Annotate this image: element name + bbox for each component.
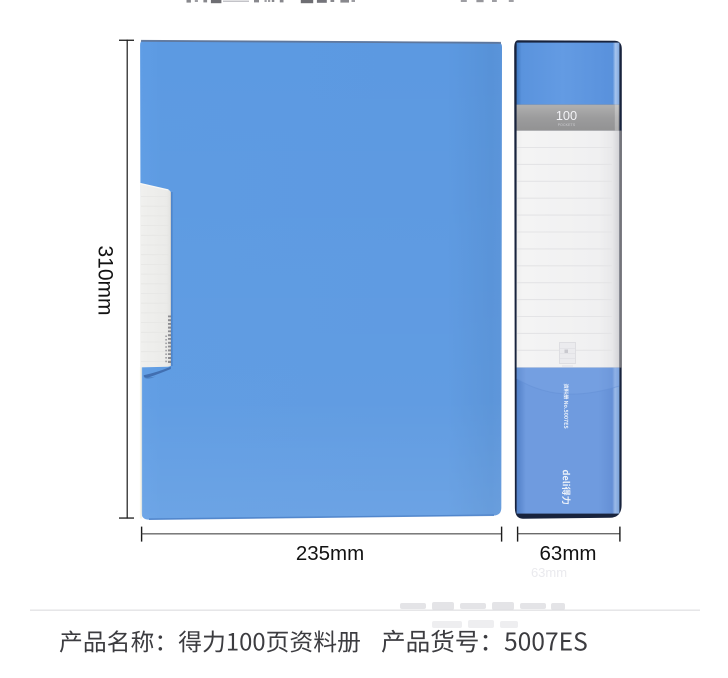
- svg-text:63mm: 63mm: [531, 565, 567, 580]
- svg-text:POCKETS: POCKETS: [558, 123, 576, 127]
- svg-text:235mm: 235mm: [296, 542, 364, 565]
- svg-text:100: 100: [556, 108, 577, 123]
- svg-text:63mm: 63mm: [540, 542, 597, 565]
- svg-text:310mm: 310mm: [94, 245, 117, 315]
